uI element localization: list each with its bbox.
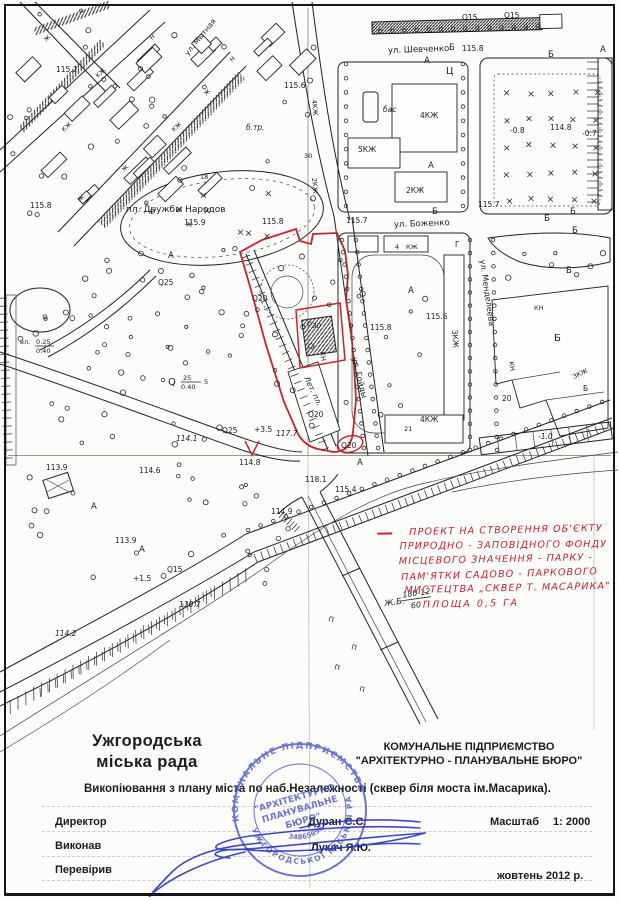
issuer-name: Ужгородська міська рада — [58, 731, 236, 773]
issuer-line2: міська рада — [58, 752, 236, 773]
red-dash-icon — [377, 532, 392, 534]
bureau-name: КОМУНАЛЬНЕ ПІДПРИЄМСТВО "АРХІТЕКТУРНО - … — [328, 740, 610, 768]
map-label: Б — [449, 43, 455, 53]
map-label: 0.25 — [36, 338, 50, 346]
map-label: А — [424, 56, 430, 66]
map-label: Б — [432, 207, 438, 217]
scale-label: Масштаб — [490, 816, 539, 828]
map-label: Б — [572, 226, 578, 236]
map-label: Б — [583, 384, 588, 393]
map-label: А — [428, 161, 434, 171]
bureau-line2: "АРХІТЕКТУРНО - ПЛАНУВАЛЬНЕ БЮРО" — [328, 754, 610, 768]
issuer-line1: Ужгородська — [58, 731, 236, 752]
block-a1 — [338, 62, 468, 212]
document-subtitle: Викопіювання з плану міста по наб.Незале… — [84, 783, 551, 795]
map-label: А — [357, 458, 363, 468]
project-annotation: ПРОЕКТ НА СТВОРЕННЯ ОБ'ЄКТУ ПРИРОДНО - З… — [395, 522, 615, 614]
map-label: 2КЖ — [310, 177, 319, 193]
sign-name-executor: Лукач Я.Ю. — [311, 842, 371, 854]
small-houses-group — [16, 23, 316, 204]
ruled-line — [42, 856, 592, 857]
pool — [363, 92, 378, 122]
map-label: 4КЖ — [310, 99, 319, 115]
map-label: 114.2 — [55, 629, 77, 638]
map-label: 114.9 — [271, 507, 293, 516]
map-label: 30 — [304, 152, 312, 160]
date-note: жовтень 2012 р. — [497, 870, 583, 882]
map-label: +3.5 — [254, 425, 272, 434]
scanned-map-sheet: Ж.Б. 180-12 60 ул. Мытная115.2115.8ЖКЖНЖ… — [0, 0, 619, 900]
round-flowerbed — [260, 265, 314, 319]
map-label: Q20 — [341, 441, 357, 450]
map-label: Б — [548, 50, 554, 60]
map-label: 115.6 — [284, 81, 306, 90]
map-label: -0.8 — [510, 126, 525, 135]
sign-label-checker: Перевірив — [55, 864, 112, 876]
map-label: 20 — [502, 394, 512, 403]
scale-note: Масштаб1: 2000 — [490, 816, 590, 828]
block-b2 — [479, 233, 612, 455]
map-label: 18 — [200, 173, 208, 181]
map-label: ул. Шевченко — [388, 44, 450, 56]
map-label: 4 — [395, 243, 399, 251]
map-label: Q — [168, 377, 176, 388]
map-label: 5 — [204, 378, 208, 386]
map-label: 114.1 — [176, 434, 197, 443]
map-label: КЖ — [95, 67, 108, 80]
map-label: ул. Менделеева — [478, 259, 496, 327]
map-label: 114.8 — [550, 123, 572, 132]
annotation-line: ПРИРОДНО - ЗАПОВІДНОГО ФОНДУ — [399, 537, 613, 554]
map-label: А — [408, 286, 414, 296]
map-label: 5КЖ — [358, 145, 376, 154]
map-label: КЖ — [171, 121, 184, 134]
map-label: Н — [229, 55, 237, 63]
map-label: ул. Боженко — [394, 218, 450, 230]
map-label: 115.8 — [30, 201, 52, 210]
map-label: А — [139, 545, 145, 555]
map-label: Q15 — [167, 565, 183, 574]
map-label: ел. — [20, 338, 30, 346]
map-label: П — [333, 663, 340, 672]
map-label: 115.7 — [346, 216, 368, 225]
map-label: Г — [455, 240, 460, 249]
map-label: П — [350, 643, 357, 652]
map-label: Б — [554, 333, 561, 344]
map-label: 115.7 — [478, 200, 500, 209]
map-label: 115.8 — [262, 217, 284, 226]
map-label: 118.1 — [305, 475, 327, 484]
map-label: 115.9 — [184, 218, 206, 227]
map-label: КН — [507, 361, 517, 372]
map-label: 30 — [312, 322, 321, 330]
map-label: А — [168, 251, 174, 261]
map-label: 114.6 — [139, 466, 161, 475]
sign-label-director: Директор — [55, 816, 107, 828]
map-label: 25 — [183, 374, 191, 382]
ruled-line — [42, 806, 592, 807]
map-label: 115.8 — [462, 44, 484, 53]
map-label: -0.7 — [582, 129, 597, 138]
map-label: 115.8 — [370, 323, 392, 332]
map-label: 0.40 — [36, 347, 50, 355]
map-label: КЖ — [61, 121, 74, 134]
map-label: Б — [544, 214, 550, 224]
map-label: 117.7 — [276, 429, 298, 438]
map-label: 115.6 — [426, 312, 448, 321]
map-label: 4КЖ — [420, 111, 438, 120]
sign-label-executor: Виконав — [55, 840, 101, 852]
map-label: Б — [570, 207, 576, 217]
map-label: Q25 — [222, 426, 238, 435]
ruled-line — [42, 831, 592, 832]
map-label: 0.40 — [181, 383, 195, 391]
bureau-line1: КОМУНАЛЬНЕ ПІДПРИЄМСТВО — [328, 740, 610, 754]
map-label: Q15 — [504, 11, 520, 20]
map-label: б.тр. — [246, 123, 265, 132]
map-label: 115.4 — [335, 485, 357, 494]
map-label: 2КЖ — [406, 186, 424, 195]
map-label: 21 — [404, 425, 412, 433]
map-label: КН — [318, 351, 328, 362]
map-label: А — [600, 45, 606, 55]
map-label: П — [358, 685, 365, 694]
map-label: КЖ — [406, 243, 418, 251]
map-label: Ц — [446, 66, 453, 77]
map-label: +1.5 — [133, 574, 151, 583]
map-label: ул. Гойды — [350, 356, 369, 399]
map-label: 115.2 — [56, 65, 78, 74]
map-label: КН — [534, 304, 544, 312]
map-label: 114.8 — [239, 458, 261, 467]
map-label: 4КЖ — [420, 415, 438, 424]
map-label: Q25 — [158, 278, 174, 287]
map-label: Q20 — [252, 294, 268, 303]
map-label: Q15 — [462, 13, 478, 22]
map-label: 113.9 — [46, 463, 68, 472]
map-label: 110.7 — [179, 600, 201, 609]
map-label: бас — [383, 105, 397, 114]
map-label: пл. Дружбы Народов — [126, 205, 226, 215]
map-label: ЗКЖ — [450, 329, 461, 348]
map-label: -1.0 — [538, 432, 553, 441]
map-label: П — [327, 615, 334, 624]
map-label: А — [91, 502, 97, 512]
sign-name-director: Дуран С.С. — [308, 816, 366, 828]
map-label: Q20 — [308, 410, 324, 419]
map-label: Б — [566, 266, 572, 276]
map-label: Н — [149, 33, 157, 41]
map-label: 113.9 — [115, 536, 137, 545]
scale-value: 1: 2000 — [553, 816, 590, 828]
